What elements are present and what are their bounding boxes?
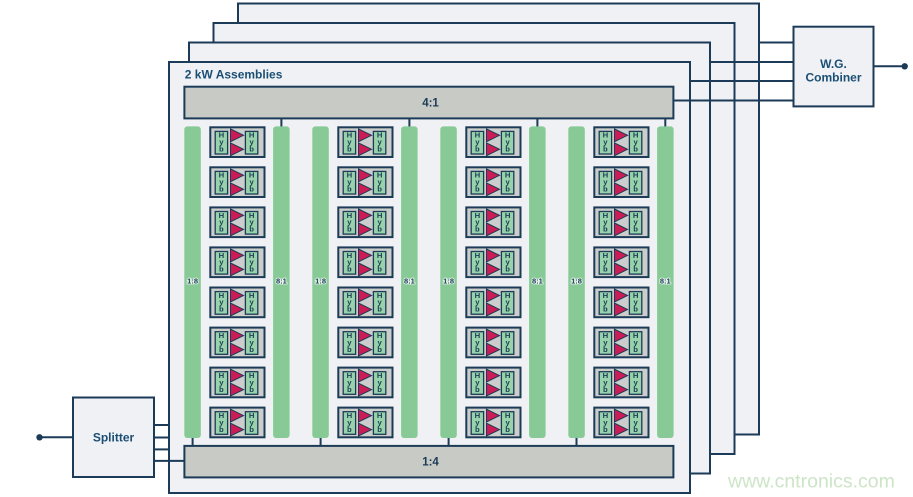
svg-text:4:1: 4:1 — [422, 98, 439, 110]
svg-text:www.cntronics.com: www.cntronics.com — [727, 471, 895, 493]
svg-text:8:1: 8:1 — [660, 277, 671, 286]
svg-text:1:4: 1:4 — [422, 457, 439, 469]
svg-text:2 kW Assemblies: 2 kW Assemblies — [185, 68, 283, 82]
svg-text:1:8: 1:8 — [187, 277, 198, 286]
svg-text:1:8: 1:8 — [443, 277, 454, 286]
svg-text:1:8: 1:8 — [315, 277, 326, 286]
svg-text:8:1: 8:1 — [532, 277, 543, 286]
svg-text:Splitter: Splitter — [93, 431, 135, 445]
svg-text:W.G.: W.G. — [820, 57, 847, 71]
svg-text:1:8: 1:8 — [571, 277, 582, 286]
svg-text:Combiner: Combiner — [805, 70, 861, 84]
svg-text:8:1: 8:1 — [404, 277, 415, 286]
svg-text:8:1: 8:1 — [276, 277, 287, 286]
